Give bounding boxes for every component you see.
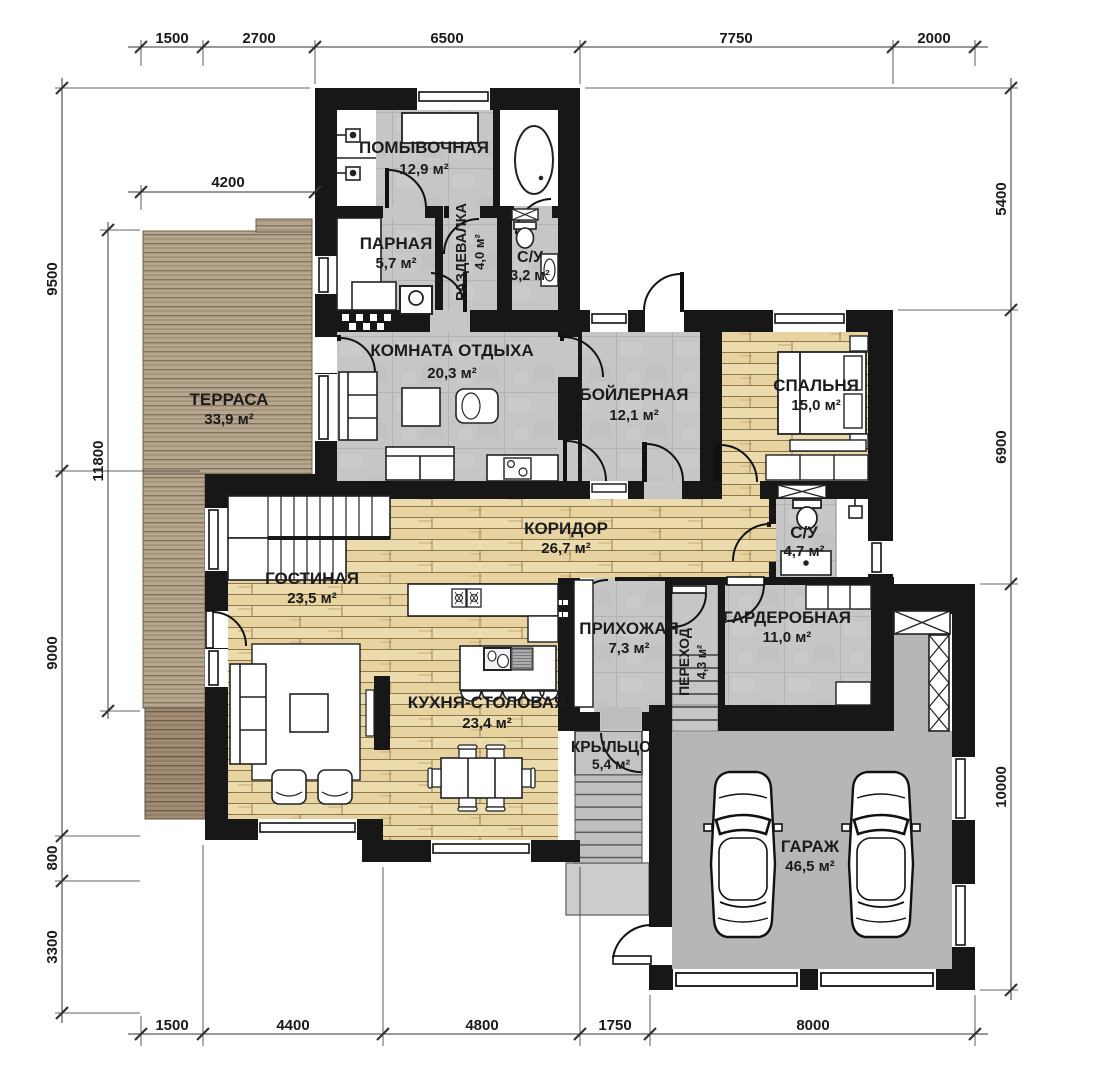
- svg-text:10000: 10000: [993, 766, 1010, 808]
- svg-text:ГОСТИНАЯ: ГОСТИНАЯ: [265, 569, 359, 588]
- svg-text:КРЫЛЬЦО: КРЫЛЬЦО: [571, 739, 651, 756]
- svg-text:5,7 м²: 5,7 м²: [375, 255, 416, 272]
- svg-text:12,1 м²: 12,1 м²: [609, 407, 658, 424]
- svg-text:23,4 м²: 23,4 м²: [462, 715, 511, 732]
- svg-text:6500: 6500: [430, 30, 463, 47]
- svg-text:800: 800: [44, 845, 61, 870]
- svg-text:3,2 м²: 3,2 м²: [510, 268, 550, 284]
- svg-text:6900: 6900: [993, 430, 1010, 463]
- svg-text:9000: 9000: [44, 636, 61, 669]
- svg-text:ГАРДЕРОБНАЯ: ГАРДЕРОБНАЯ: [723, 608, 851, 627]
- svg-text:1750: 1750: [598, 1017, 631, 1034]
- svg-text:ПЕРЕХОД: ПЕРЕХОД: [676, 628, 692, 696]
- svg-text:4,0 м²: 4,0 м²: [472, 234, 487, 270]
- svg-text:4,3 м²: 4,3 м²: [695, 645, 709, 679]
- svg-text:3300: 3300: [44, 930, 61, 963]
- svg-text:КУХНЯ-СТОЛОВАЯ: КУХНЯ-СТОЛОВАЯ: [408, 693, 567, 712]
- svg-text:С/У: С/У: [517, 249, 544, 266]
- svg-text:ПРИХОЖАЯ: ПРИХОЖАЯ: [579, 619, 679, 638]
- svg-text:4800: 4800: [465, 1017, 498, 1034]
- svg-text:9500: 9500: [44, 262, 61, 295]
- svg-text:КОМНАТА ОТДЫХА: КОМНАТА ОТДЫХА: [370, 341, 533, 360]
- svg-text:ТЕРРАСА: ТЕРРАСА: [190, 390, 269, 409]
- svg-text:1500: 1500: [155, 30, 188, 47]
- svg-text:12,9 м²: 12,9 м²: [399, 161, 448, 178]
- svg-text:33,9 м²: 33,9 м²: [204, 411, 253, 428]
- svg-text:ПОМЫВОЧНАЯ: ПОМЫВОЧНАЯ: [359, 138, 489, 157]
- svg-text:20,3 м²: 20,3 м²: [427, 365, 476, 382]
- svg-text:7,3 м²: 7,3 м²: [608, 640, 649, 657]
- svg-text:СПАЛЬНЯ: СПАЛЬНЯ: [773, 376, 859, 395]
- svg-text:8000: 8000: [796, 1017, 829, 1034]
- svg-text:15,0 м²: 15,0 м²: [791, 397, 840, 414]
- svg-text:11800: 11800: [90, 441, 107, 482]
- svg-text:4400: 4400: [276, 1017, 309, 1034]
- svg-text:46,5 м²: 46,5 м²: [785, 858, 834, 875]
- svg-text:4200: 4200: [211, 174, 244, 191]
- svg-text:2000: 2000: [917, 30, 950, 47]
- svg-text:5400: 5400: [993, 182, 1010, 215]
- svg-text:23,5 м²: 23,5 м²: [287, 590, 336, 607]
- svg-text:7750: 7750: [719, 30, 752, 47]
- svg-text:ПАРНАЯ: ПАРНАЯ: [360, 234, 433, 253]
- svg-text:11,0 м²: 11,0 м²: [763, 629, 812, 646]
- svg-text:ГАРАЖ: ГАРАЖ: [781, 837, 840, 856]
- svg-text:РАЗДЕВАЛКА: РАЗДЕВАЛКА: [454, 203, 470, 301]
- svg-text:2700: 2700: [242, 30, 275, 47]
- svg-text:26,7 м²: 26,7 м²: [541, 540, 590, 557]
- svg-text:5,4 м²: 5,4 м²: [592, 756, 631, 772]
- svg-text:С/У: С/У: [790, 523, 818, 542]
- svg-text:1500: 1500: [155, 1017, 188, 1034]
- svg-text:БОЙЛЕРНАЯ: БОЙЛЕРНАЯ: [579, 385, 688, 404]
- svg-text:КОРИДОР: КОРИДОР: [524, 519, 608, 538]
- svg-text:4,7 м²: 4,7 м²: [783, 543, 824, 560]
